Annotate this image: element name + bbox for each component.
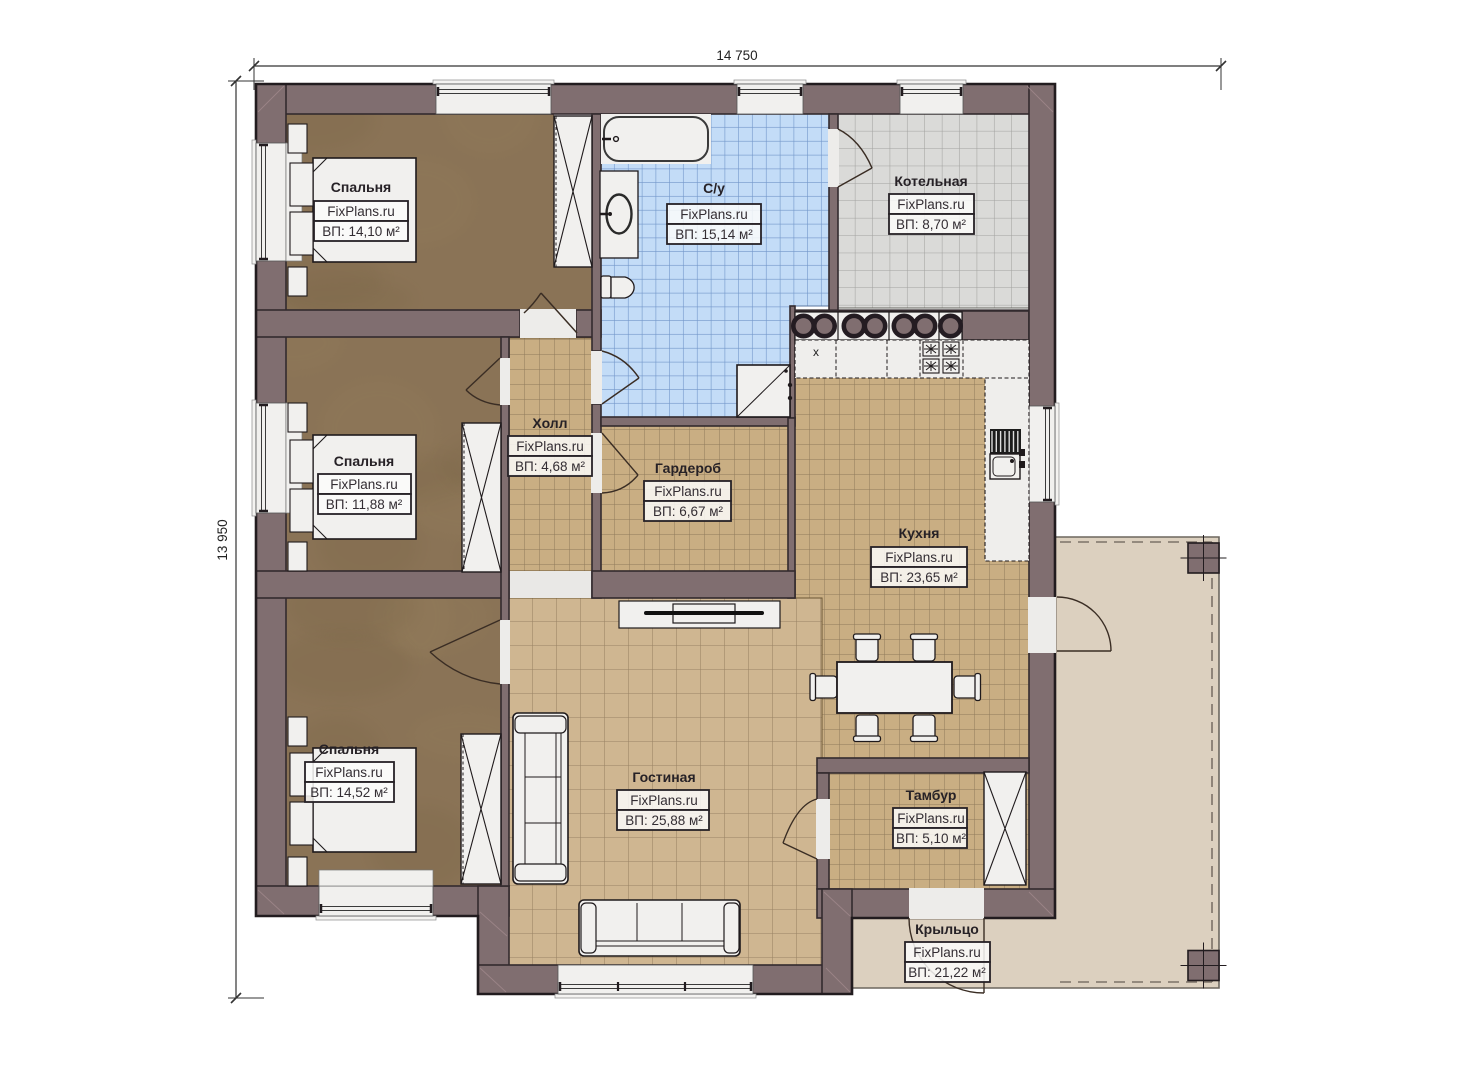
svg-text:С/у: С/у xyxy=(703,180,725,196)
svg-text:ВП: 8,70 м²: ВП: 8,70 м² xyxy=(896,217,967,232)
svg-text:Гардероб: Гардероб xyxy=(655,460,722,476)
svg-text:FixPlans.ru: FixPlans.ru xyxy=(315,765,383,780)
svg-text:Кухня: Кухня xyxy=(899,525,940,541)
svg-text:Холл: Холл xyxy=(532,415,567,431)
svg-text:ВП: 21,22 м²: ВП: 21,22 м² xyxy=(908,965,986,980)
svg-text:13 950: 13 950 xyxy=(215,519,230,560)
svg-text:ВП: 23,65 м²: ВП: 23,65 м² xyxy=(880,570,958,585)
svg-text:ВП: 4,68 м²: ВП: 4,68 м² xyxy=(515,459,586,474)
svg-text:Котельная: Котельная xyxy=(894,173,967,189)
svg-text:FixPlans.ru: FixPlans.ru xyxy=(516,439,584,454)
svg-text:FixPlans.ru: FixPlans.ru xyxy=(897,197,965,212)
svg-text:FixPlans.ru: FixPlans.ru xyxy=(897,811,965,826)
svg-text:FixPlans.ru: FixPlans.ru xyxy=(630,793,698,808)
svg-text:FixPlans.ru: FixPlans.ru xyxy=(654,484,722,499)
svg-text:ВП: 5,10 м²: ВП: 5,10 м² xyxy=(896,831,967,846)
svg-text:Спальня: Спальня xyxy=(331,179,391,195)
svg-text:FixPlans.ru: FixPlans.ru xyxy=(680,207,748,222)
svg-text:Гостиная: Гостиная xyxy=(632,769,695,785)
svg-text:Тамбур: Тамбур xyxy=(906,787,957,803)
svg-text:Спальня: Спальня xyxy=(334,453,394,469)
svg-text:FixPlans.ru: FixPlans.ru xyxy=(327,204,395,219)
svg-text:ВП: 14,10 м²: ВП: 14,10 м² xyxy=(322,224,400,239)
svg-text:Спальня: Спальня xyxy=(319,741,379,757)
svg-text:ВП: 6,67 м²: ВП: 6,67 м² xyxy=(653,504,724,519)
svg-text:x: x xyxy=(813,345,819,359)
svg-text:14 750: 14 750 xyxy=(716,48,757,63)
svg-text:ВП: 25,88 м²: ВП: 25,88 м² xyxy=(625,813,703,828)
svg-text:ВП: 11,88 м²: ВП: 11,88 м² xyxy=(326,497,403,512)
svg-text:ВП: 14,52 м²: ВП: 14,52 м² xyxy=(310,785,388,800)
svg-text:Крыльцо: Крыльцо xyxy=(915,921,979,937)
svg-text:ВП: 15,14 м²: ВП: 15,14 м² xyxy=(675,227,753,242)
svg-text:FixPlans.ru: FixPlans.ru xyxy=(330,477,398,492)
svg-text:FixPlans.ru: FixPlans.ru xyxy=(913,945,981,960)
svg-text:FixPlans.ru: FixPlans.ru xyxy=(885,550,953,565)
